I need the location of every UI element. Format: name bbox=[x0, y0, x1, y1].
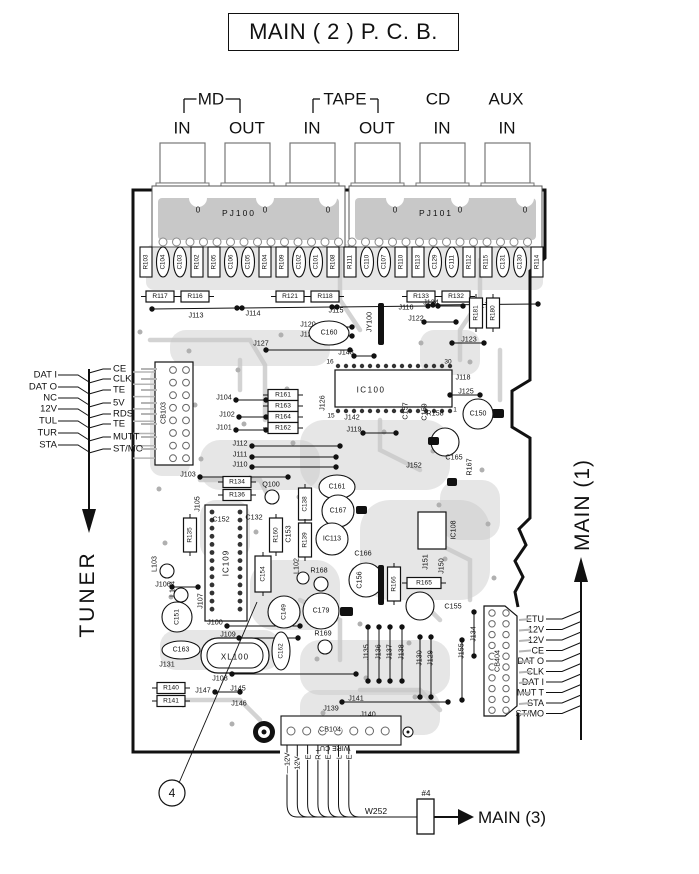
component-label: J123 bbox=[461, 335, 477, 344]
main3-port-label: MAIN (3) bbox=[478, 808, 546, 827]
signal-label: TUR bbox=[37, 428, 57, 439]
tuner-port-label: TUNER bbox=[76, 550, 99, 637]
component-label: R110 bbox=[398, 254, 405, 269]
rca-jack bbox=[485, 143, 530, 183]
solder-dot bbox=[333, 464, 338, 469]
pad bbox=[429, 238, 437, 246]
solder-dot bbox=[210, 607, 215, 612]
ic100-body bbox=[335, 370, 452, 407]
solder-dot bbox=[210, 542, 215, 547]
component-label: C165 bbox=[445, 453, 462, 462]
component-label: C161 bbox=[329, 484, 346, 491]
pad bbox=[489, 610, 495, 616]
leader-line bbox=[519, 630, 531, 631]
solder-dot bbox=[360, 409, 364, 413]
component-label: CB404 bbox=[493, 650, 502, 672]
pad bbox=[503, 707, 509, 713]
signal-label: NC bbox=[43, 393, 57, 404]
chip-component bbox=[492, 409, 504, 418]
solder-dot bbox=[238, 518, 243, 523]
component-label: J113 bbox=[188, 311, 203, 320]
pad bbox=[159, 238, 167, 246]
pad bbox=[183, 392, 190, 399]
jack-group-label: TAPE bbox=[323, 90, 366, 109]
component-label: J127 bbox=[253, 339, 269, 348]
component-label: R162 bbox=[275, 425, 291, 432]
rca-jack bbox=[355, 143, 400, 183]
leader-line bbox=[519, 693, 531, 694]
component-label: C105 bbox=[245, 254, 252, 269]
component-label: J110 bbox=[232, 460, 247, 469]
solder-dot bbox=[447, 392, 452, 397]
solder-dot bbox=[238, 599, 243, 604]
connector-block-label-pj100: PJ100 bbox=[222, 208, 256, 218]
leader-line bbox=[546, 674, 581, 682]
component-label: J118 bbox=[455, 373, 470, 382]
component-label: J101 bbox=[216, 423, 232, 432]
pad bbox=[489, 642, 495, 648]
pad bbox=[489, 675, 495, 681]
component-label: R103 bbox=[143, 254, 150, 269]
chip-component bbox=[378, 565, 384, 605]
component-label: 16 bbox=[326, 359, 334, 366]
component-label: R140 bbox=[163, 685, 179, 692]
pad bbox=[200, 238, 208, 246]
component-label: R167 bbox=[465, 458, 474, 475]
solder-dot bbox=[230, 722, 235, 727]
chip-component bbox=[378, 303, 384, 345]
solder-dot bbox=[407, 641, 412, 646]
component-label: R180 bbox=[490, 305, 497, 321]
solder-dot bbox=[138, 330, 143, 335]
solder-dot bbox=[249, 443, 254, 448]
pad bbox=[503, 610, 509, 616]
component-label: R164 bbox=[275, 414, 291, 421]
component-label: IC108 bbox=[449, 520, 458, 539]
solder-dot bbox=[368, 409, 372, 413]
component-label: R181 bbox=[473, 305, 480, 321]
solder-dot bbox=[468, 360, 473, 365]
signal-label: CLK bbox=[113, 374, 132, 385]
ic108-body bbox=[418, 512, 446, 549]
solder-dot bbox=[149, 306, 154, 311]
copper-trace bbox=[180, 700, 260, 720]
component-label: J136 bbox=[374, 644, 383, 660]
pad bbox=[227, 238, 235, 246]
leader-line bbox=[519, 619, 531, 620]
component-label: C151 bbox=[174, 609, 181, 625]
pad bbox=[489, 707, 495, 713]
component-label: R109 bbox=[279, 254, 286, 269]
wire-label: L bbox=[335, 755, 344, 759]
component-label: C110 bbox=[364, 254, 371, 269]
component-label: IC113 bbox=[323, 536, 341, 543]
jack-group-label: AUX bbox=[489, 90, 524, 109]
rca-jack bbox=[160, 143, 205, 183]
leader-line bbox=[546, 685, 581, 693]
component-label: R160 bbox=[273, 527, 280, 543]
solder-dot bbox=[384, 409, 388, 413]
pad bbox=[402, 238, 410, 246]
component-label: 30 bbox=[444, 359, 452, 366]
solder-dot bbox=[210, 550, 215, 555]
solder-dot bbox=[392, 364, 396, 368]
component-label: J126 bbox=[318, 395, 327, 411]
component-label: C107 bbox=[381, 254, 388, 269]
zero-mark: 0 bbox=[263, 206, 268, 215]
signal-label: CE bbox=[531, 646, 544, 656]
component-label: R135 bbox=[187, 527, 194, 543]
pad bbox=[350, 727, 358, 735]
solder-dot bbox=[239, 305, 244, 310]
wire-label: E bbox=[345, 754, 354, 759]
component-label: J102 bbox=[219, 410, 235, 419]
component-label: R115 bbox=[483, 254, 490, 269]
solder-dot bbox=[349, 333, 354, 338]
solder-dot bbox=[249, 464, 254, 469]
solder-dot bbox=[376, 364, 380, 368]
solder-dot bbox=[285, 474, 290, 479]
leader-line bbox=[89, 379, 111, 383]
rca-jack bbox=[225, 143, 270, 183]
solder-dot bbox=[238, 583, 243, 588]
component-label: J143 bbox=[338, 348, 354, 357]
component-label: C102 bbox=[296, 254, 303, 269]
solder-dot bbox=[238, 566, 243, 571]
component-label: J150 bbox=[437, 558, 446, 574]
chip-component bbox=[356, 506, 367, 514]
connector-notch bbox=[386, 189, 404, 207]
pad bbox=[183, 442, 190, 449]
component-body bbox=[318, 640, 332, 654]
component-label: R105 bbox=[211, 254, 218, 269]
solder-dot bbox=[291, 441, 296, 446]
solder-dot bbox=[471, 609, 476, 614]
pad bbox=[254, 238, 262, 246]
leader-line bbox=[546, 664, 581, 672]
component-label: CB103 bbox=[159, 402, 168, 424]
leader-line bbox=[546, 695, 581, 703]
pad bbox=[524, 238, 532, 246]
pad bbox=[213, 238, 221, 246]
pad bbox=[381, 727, 389, 735]
solder-dot bbox=[210, 591, 215, 596]
solder-dot bbox=[233, 427, 238, 432]
pad bbox=[170, 442, 177, 449]
component-label: R141 bbox=[163, 698, 179, 705]
component-label: C104 bbox=[160, 254, 167, 269]
solder-dot bbox=[352, 364, 356, 368]
component-body bbox=[314, 577, 328, 591]
signal-label: TE bbox=[113, 385, 125, 396]
wire-label: 12V bbox=[293, 756, 302, 769]
leader-line bbox=[519, 640, 531, 641]
leader-line bbox=[89, 369, 111, 373]
pad bbox=[170, 392, 177, 399]
pad bbox=[281, 238, 289, 246]
pad bbox=[503, 653, 509, 659]
grommet bbox=[262, 730, 267, 735]
solder-dot bbox=[408, 364, 412, 368]
component-label: R165 bbox=[416, 580, 432, 587]
solder-dot bbox=[238, 510, 243, 515]
component-label: C179 bbox=[313, 608, 330, 615]
wire-label: R bbox=[314, 754, 323, 760]
solder-dot bbox=[382, 430, 387, 435]
component-label: 15 bbox=[327, 413, 335, 420]
component-label: C129 bbox=[432, 254, 439, 269]
leader-line bbox=[89, 424, 111, 428]
pad bbox=[416, 238, 424, 246]
solder-dot bbox=[460, 303, 465, 308]
solder-dot bbox=[376, 624, 381, 629]
component-label: R112 bbox=[466, 254, 473, 269]
solder-dot bbox=[344, 364, 348, 368]
harness-plug bbox=[417, 799, 434, 834]
solder-dot bbox=[368, 364, 372, 368]
component-label: CB104 bbox=[319, 725, 341, 734]
pad bbox=[294, 238, 302, 246]
solder-dot bbox=[187, 349, 192, 354]
jack-direction-label: IN bbox=[434, 119, 451, 138]
solder-dot bbox=[387, 678, 392, 683]
solder-dot bbox=[337, 443, 342, 448]
component-label: J155 bbox=[457, 643, 466, 659]
leader-line bbox=[519, 672, 531, 673]
wire-label: —12V bbox=[283, 753, 292, 774]
component-body bbox=[406, 592, 434, 620]
leader-line bbox=[519, 714, 531, 715]
signal-label: TUL bbox=[39, 416, 57, 427]
component-label: C138 bbox=[302, 496, 309, 512]
component-label: L102 bbox=[292, 558, 301, 574]
pad bbox=[483, 238, 491, 246]
solder-dot bbox=[238, 607, 243, 612]
component-label: J125 bbox=[458, 387, 474, 396]
component-label: R114 bbox=[534, 254, 541, 269]
pad bbox=[348, 238, 356, 246]
solder-dot bbox=[238, 574, 243, 579]
component-label: C150 bbox=[470, 411, 487, 418]
component-label: IC100 bbox=[357, 386, 386, 395]
solder-dot bbox=[195, 584, 200, 589]
component-label: C111 bbox=[449, 255, 456, 269]
leader-line bbox=[519, 651, 531, 652]
solder-dot bbox=[432, 364, 436, 368]
component-label: C154 bbox=[260, 566, 267, 582]
pad bbox=[503, 685, 509, 691]
component-label: J134 bbox=[469, 626, 478, 642]
leader-line bbox=[519, 703, 531, 704]
solder-dot bbox=[360, 364, 364, 368]
solder-dot bbox=[399, 678, 404, 683]
component-label: J119 bbox=[346, 425, 361, 434]
component-label: R104 bbox=[262, 254, 269, 269]
component-label: R163 bbox=[275, 403, 291, 410]
rca-jack bbox=[290, 143, 335, 183]
solder-dot bbox=[535, 301, 540, 306]
solder-dot bbox=[336, 364, 340, 368]
solder-dot bbox=[163, 541, 168, 546]
jack-group-label: CD bbox=[426, 90, 451, 109]
solder-dot bbox=[236, 414, 241, 419]
component-label: C156 bbox=[355, 571, 364, 588]
signal-label: DAT O bbox=[29, 382, 57, 393]
component-label: R158 bbox=[426, 409, 443, 418]
pad bbox=[186, 238, 194, 246]
solder-dot bbox=[210, 583, 215, 588]
leader-line bbox=[89, 449, 111, 453]
component-label: C152 bbox=[212, 515, 229, 524]
solder-dot bbox=[212, 689, 217, 694]
callout-number: 4 bbox=[169, 786, 176, 800]
solder-dot bbox=[157, 487, 162, 492]
solder-dot bbox=[413, 695, 418, 700]
component-label: C106 bbox=[228, 254, 235, 269]
solder-dot bbox=[437, 503, 442, 508]
connector-notch bbox=[256, 189, 274, 207]
solder-dot bbox=[365, 624, 370, 629]
component-label: R132 bbox=[448, 293, 464, 300]
component-label: J115 bbox=[328, 306, 343, 315]
chip-component bbox=[340, 607, 353, 616]
solder-dot bbox=[254, 530, 259, 535]
leader-line bbox=[546, 622, 581, 630]
pad bbox=[362, 238, 370, 246]
solder-dot bbox=[453, 319, 458, 324]
leader-line bbox=[58, 433, 89, 440]
component-label: R121 bbox=[282, 293, 298, 300]
solder-dot bbox=[387, 624, 392, 629]
component-label: J104 bbox=[216, 393, 232, 402]
component-label: J140 bbox=[360, 710, 376, 719]
component-label: J135 bbox=[362, 644, 371, 660]
component-label: C163 bbox=[173, 647, 190, 654]
leader-line bbox=[546, 632, 581, 640]
pad bbox=[170, 455, 177, 462]
solder-dot bbox=[428, 694, 433, 699]
component-label: R113 bbox=[415, 254, 422, 269]
solder-dot bbox=[480, 468, 485, 473]
signal-label: MUTT bbox=[113, 432, 140, 443]
component-label: C153 bbox=[284, 525, 293, 542]
component-label: R108 bbox=[330, 254, 337, 269]
rca-jack bbox=[420, 143, 465, 183]
leader-line bbox=[58, 421, 89, 428]
solder-dot bbox=[376, 678, 381, 683]
solder-dot bbox=[210, 534, 215, 539]
connector-notch bbox=[189, 189, 207, 207]
pad bbox=[443, 238, 451, 246]
jack-direction-label: IN bbox=[174, 119, 191, 138]
component-label: J112 bbox=[232, 439, 247, 448]
jumper-wire bbox=[152, 308, 237, 309]
solder-dot bbox=[263, 347, 268, 352]
component-label: C103 bbox=[177, 254, 184, 269]
pad bbox=[366, 727, 374, 735]
component-label: C131 bbox=[500, 254, 507, 269]
component-label: J131 bbox=[159, 660, 175, 669]
solder-dot bbox=[249, 454, 254, 459]
pad bbox=[267, 238, 275, 246]
component-label: J124 bbox=[423, 298, 439, 307]
component-label: R117 bbox=[152, 293, 168, 300]
pad bbox=[183, 430, 190, 437]
component-label: R168 bbox=[310, 566, 327, 575]
solder-dot bbox=[234, 305, 239, 310]
solder-dot bbox=[371, 353, 376, 358]
solder-dot bbox=[233, 397, 238, 402]
component-label: J114 bbox=[245, 309, 260, 318]
component-label: J152 bbox=[406, 461, 422, 470]
leader-line bbox=[89, 437, 111, 441]
component-label: C149 bbox=[281, 604, 288, 620]
component-label: J105 bbox=[193, 496, 202, 512]
component-label: J129 bbox=[426, 650, 435, 666]
component-body bbox=[265, 490, 279, 504]
pad bbox=[389, 238, 397, 246]
solder-dot bbox=[477, 392, 482, 397]
pad bbox=[375, 238, 383, 246]
pad bbox=[303, 727, 311, 735]
pad bbox=[173, 238, 181, 246]
pad bbox=[183, 417, 190, 424]
component-label: J122 bbox=[408, 314, 424, 323]
solder-dot bbox=[242, 422, 247, 427]
component-label: J151 bbox=[421, 554, 430, 570]
pad bbox=[170, 379, 177, 386]
pad bbox=[240, 238, 248, 246]
component-label: C159 bbox=[420, 403, 429, 420]
solder-dot bbox=[236, 368, 241, 373]
component-label: J138 bbox=[397, 644, 406, 660]
main1-arrow-head bbox=[574, 557, 588, 582]
solder-dot bbox=[333, 454, 338, 459]
leader-line bbox=[519, 682, 531, 683]
signal-label: ST/MO bbox=[113, 444, 143, 455]
pad bbox=[308, 238, 316, 246]
solder-dot bbox=[365, 678, 370, 683]
solder-dot bbox=[399, 624, 404, 629]
solder-dot bbox=[419, 341, 424, 346]
solder-dot bbox=[336, 409, 340, 413]
pad bbox=[335, 238, 343, 246]
leader-line bbox=[58, 445, 89, 452]
pad bbox=[183, 367, 190, 374]
pad bbox=[456, 238, 464, 246]
zero-mark: 0 bbox=[196, 206, 201, 215]
solder-dot bbox=[339, 699, 344, 704]
pad bbox=[489, 621, 495, 627]
solder-dot bbox=[459, 697, 464, 702]
leader-line bbox=[89, 403, 111, 407]
component-label: J100 bbox=[207, 618, 223, 627]
solder-dot bbox=[279, 333, 284, 338]
pad bbox=[287, 727, 295, 735]
component-label: J141 bbox=[348, 694, 364, 703]
solder-dot bbox=[210, 526, 215, 531]
leader-line bbox=[58, 387, 89, 394]
solder-dot bbox=[199, 457, 204, 462]
component-label: R166 bbox=[391, 576, 398, 592]
solder-dot bbox=[459, 637, 464, 642]
solder-dot bbox=[238, 550, 243, 555]
leader-line bbox=[546, 706, 581, 714]
solder-dot bbox=[471, 653, 476, 658]
connector-notch bbox=[451, 189, 469, 207]
solder-dot bbox=[481, 340, 486, 345]
signal-label: TE bbox=[113, 419, 125, 430]
